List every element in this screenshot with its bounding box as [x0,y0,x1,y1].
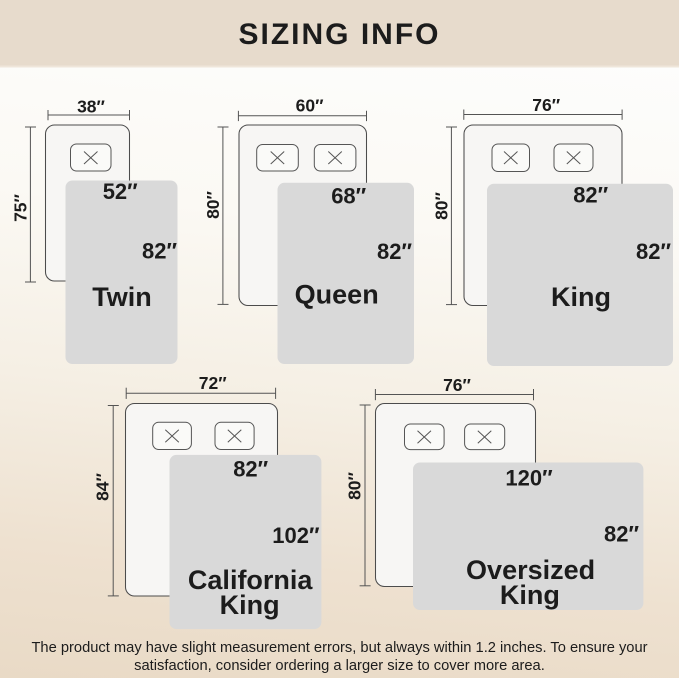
svg-text:SIZING INFO: SIZING INFO [239,18,441,51]
svg-text:satisfaction, consider orderin: satisfaction, consider ordering a larger… [134,658,545,674]
svg-text:80″: 80″ [203,190,223,218]
svg-text:King: King [220,590,280,620]
svg-text:King: King [500,580,560,610]
svg-text:72″: 72″ [199,373,227,393]
svg-text:80″: 80″ [345,471,365,499]
svg-text:The product may have slight me: The product may have slight measurement … [31,640,647,656]
svg-text:75″: 75″ [11,193,31,221]
svg-text:Twin: Twin [92,282,151,312]
svg-text:102″: 102″ [272,523,320,548]
svg-text:82″: 82″ [604,522,639,547]
svg-text:76″: 76″ [532,95,560,115]
svg-text:82″: 82″ [573,183,608,208]
svg-text:82″: 82″ [233,457,268,482]
svg-text:84″: 84″ [93,472,113,500]
svg-text:82″: 82″ [636,239,671,264]
svg-text:60″: 60″ [296,95,324,115]
svg-text:52″: 52″ [103,179,138,204]
svg-text:82″: 82″ [377,239,412,264]
svg-text:38″: 38″ [77,96,105,116]
svg-text:68″: 68″ [331,184,366,209]
svg-text:120″: 120″ [505,466,553,491]
svg-text:76″: 76″ [443,375,471,395]
svg-text:80″: 80″ [432,191,452,219]
svg-text:82″: 82″ [142,239,177,264]
svg-text:King: King [551,282,611,312]
svg-text:Queen: Queen [295,280,379,310]
